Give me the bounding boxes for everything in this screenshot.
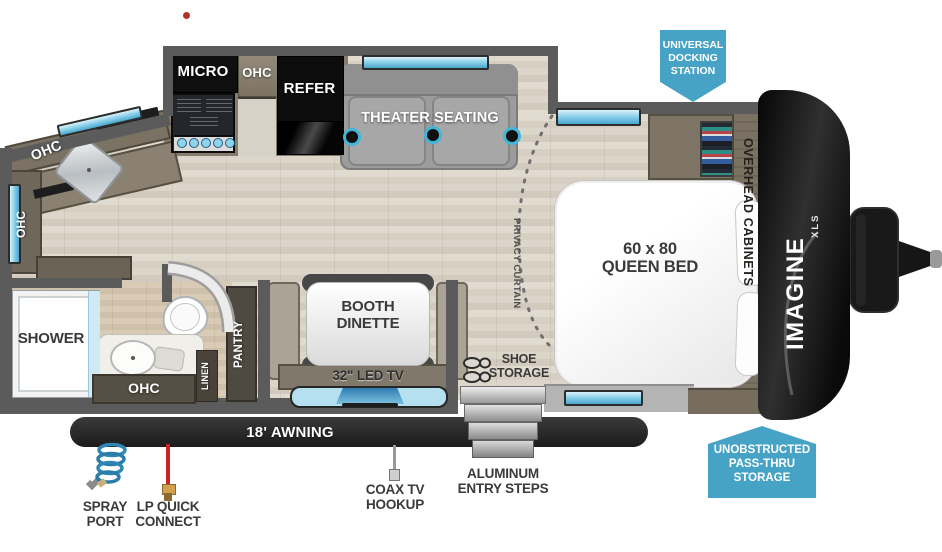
coax-label-line1: COAX TV: [353, 482, 437, 497]
front-cap: IMAGINE XLS: [758, 90, 850, 420]
docking-line3: STATION: [660, 65, 726, 78]
kitchen-lower-cabinet: [238, 96, 276, 156]
brand-name: IMAGINE: [782, 182, 810, 350]
kitchen-lower-counter: [36, 256, 132, 280]
docking-station-callout: UNIVERSAL DOCKING STATION: [660, 30, 726, 102]
passthru-line2: PASS-THRU: [708, 457, 816, 471]
led-tv-stand: [342, 403, 398, 407]
coupler-tip: [930, 250, 942, 268]
entry-side-window: [564, 390, 643, 406]
refrigerator-lower-panel: [277, 121, 344, 155]
shoe-label-line1: SHOE: [486, 352, 552, 366]
passthru-line3: STORAGE: [708, 471, 816, 485]
tv-label: 32" LED TV: [288, 368, 448, 383]
steps-label-line2: ENTRY STEPS: [450, 481, 556, 496]
left-ohc-label: OHC: [14, 196, 28, 252]
wall-bathroom-top: [10, 278, 122, 288]
cupholder: [503, 127, 521, 145]
lp-quick-connect-label: LP QUICK CONNECT: [126, 499, 210, 529]
wall-slide-top: [163, 46, 558, 56]
booth-label-line1: BOOTH: [306, 299, 430, 316]
range-knob: [177, 138, 187, 148]
shower-label: SHOWER: [14, 331, 88, 348]
range-panel-text: [206, 99, 232, 113]
queen-bed: [554, 180, 758, 388]
range-knob: [201, 138, 211, 148]
sink-drain: [87, 168, 91, 172]
wall-dinette-left: [258, 280, 270, 402]
pantry-label: PANTRY: [233, 300, 245, 388]
coax-connector: [389, 469, 400, 481]
refrigerator-label: REFER: [277, 80, 342, 97]
range-panel-text: [177, 99, 201, 113]
microwave-label: MICRO: [170, 63, 236, 80]
shoe-label-line2: STORAGE: [486, 366, 552, 380]
entry-steps-label: ALUMINUM ENTRY STEPS: [450, 466, 556, 496]
cupholder: [343, 128, 361, 146]
living-window: [362, 55, 489, 70]
lp-label-line1: LP QUICK: [126, 499, 210, 514]
spray-port-hose: [88, 445, 125, 488]
floorplan-diagram: MICRO OHC REFER OHC OHC THEATER SEATING …: [0, 0, 942, 552]
privacy-curtain-label: PRIVACY CURTAIN: [511, 218, 522, 328]
wall-bathroom-stub: [162, 264, 172, 302]
bedroom-window: [556, 108, 641, 126]
entry-steps: [460, 386, 546, 464]
docking-line2: DOCKING: [660, 52, 726, 65]
coax-label-line2: HOOKUP: [353, 497, 437, 512]
propane-cover-highlight: [856, 214, 866, 306]
booth-label-line2: DINETTE: [306, 316, 430, 333]
step-tread: [464, 404, 542, 422]
theater-seat-cushion: [348, 96, 426, 166]
bed-type-text: QUEEN BED: [560, 258, 740, 276]
bed-size-text: 60 x 80: [560, 240, 740, 258]
theater-seat-cushion: [432, 96, 510, 166]
led-tv-screen: [336, 388, 404, 404]
brand-sub: XLS: [810, 202, 821, 238]
booth-dinette-label: BOOTH DINETTE: [306, 299, 430, 333]
overhead-cabinet-kitchen-label: OHC: [238, 65, 276, 80]
coax-hookup-label: COAX TV HOOKUP: [353, 482, 437, 512]
step-tread: [468, 422, 538, 440]
sink-drain: [131, 356, 135, 360]
coax-line: [393, 445, 396, 471]
step-tread: [472, 440, 534, 458]
hitch-assembly: [838, 198, 942, 322]
overhead-cabinets-label: OVERHEAD CABINETS: [741, 138, 755, 388]
range-knob: [189, 138, 199, 148]
range-knob: [225, 138, 235, 148]
cupholder: [424, 126, 442, 144]
linen-label: LINEN: [200, 354, 210, 398]
red-marker-dot: [183, 12, 190, 19]
lp-label-line2: CONNECT: [126, 514, 210, 529]
steps-label-line1: ALUMINUM: [450, 466, 556, 481]
range-knob: [213, 138, 223, 148]
step-tread: [460, 386, 546, 404]
shoe-storage-label: SHOE STORAGE: [486, 352, 552, 380]
docking-line1: UNIVERSAL: [660, 39, 726, 52]
queen-bed-label: 60 x 80 QUEEN BED: [560, 240, 740, 277]
awning-label: 18' AWNING: [180, 424, 400, 441]
theater-seating-label: THEATER SEATING: [350, 110, 510, 126]
range-panel-text: [190, 117, 218, 127]
lp-line: [166, 444, 170, 486]
wall-slide-left: [163, 46, 173, 116]
bath-ohc-label: OHC: [92, 380, 196, 396]
passthru-line1: UNOBSTRUCTED: [708, 443, 816, 457]
vanity-faucet: [153, 346, 186, 372]
passthru-storage-callout: UNOBSTRUCTED PASS-THRU STORAGE: [708, 426, 816, 498]
wall-dinette-right: [446, 280, 458, 402]
